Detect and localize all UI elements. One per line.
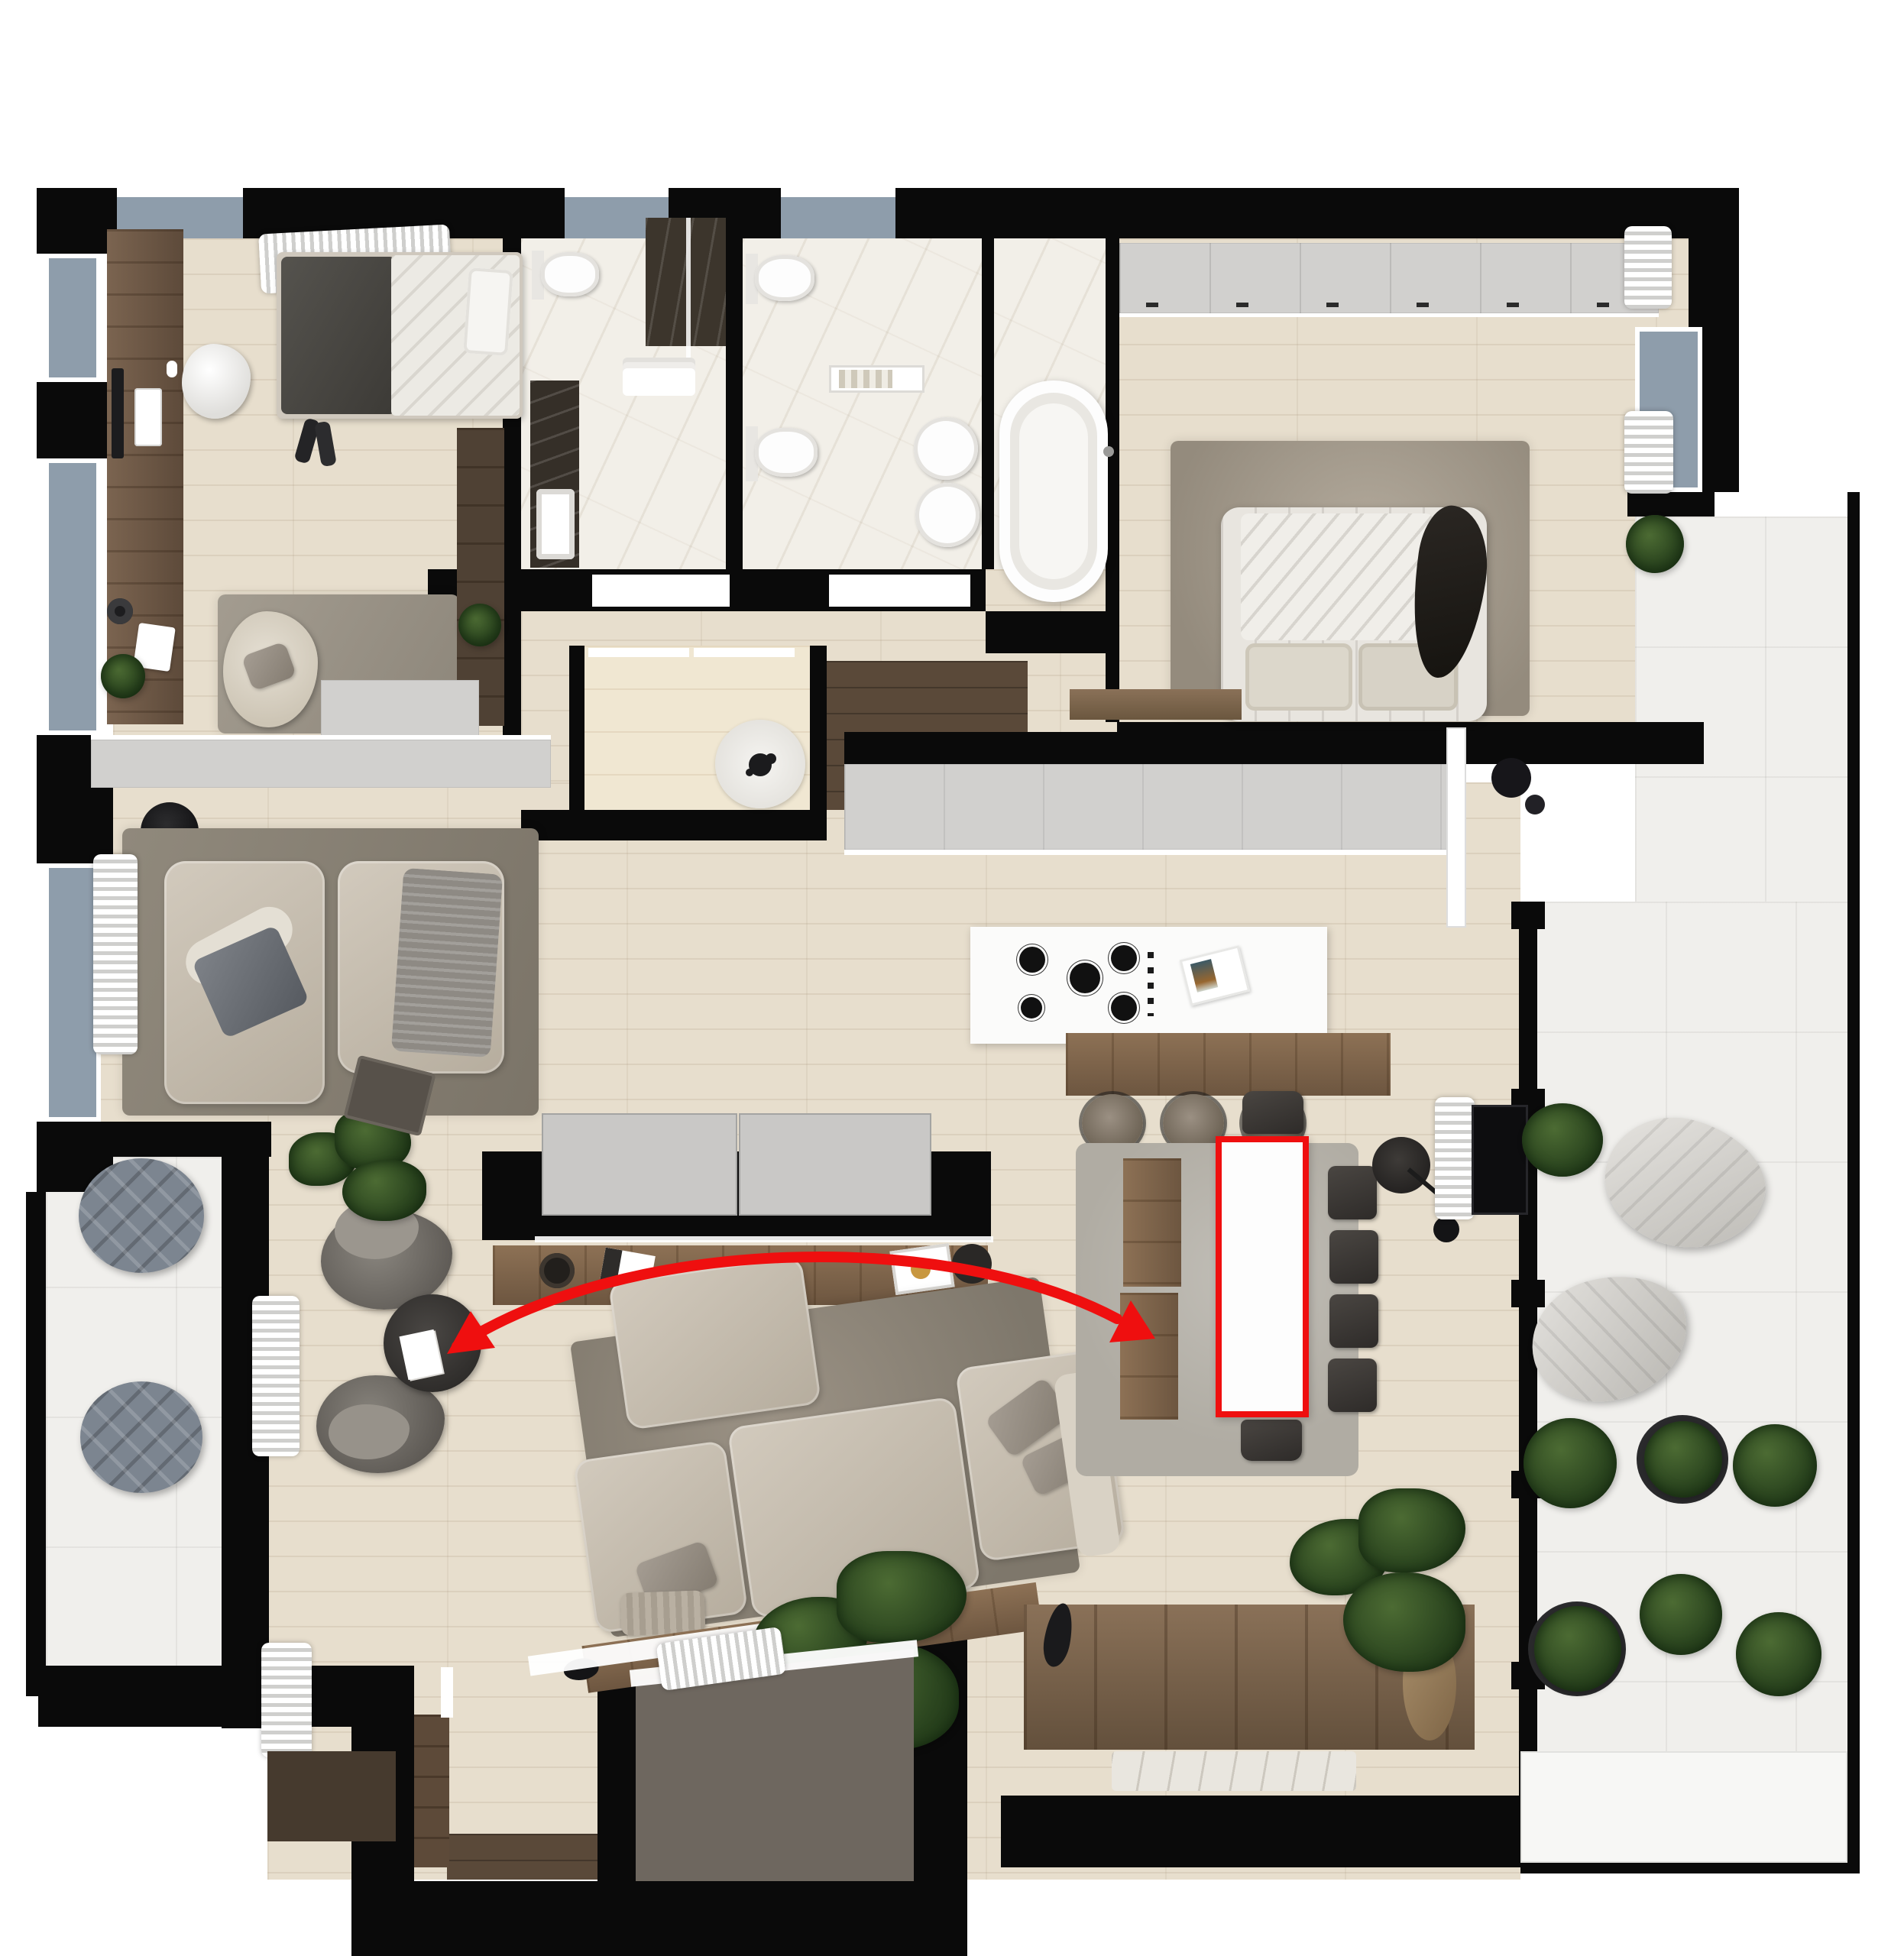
wall-closet-west (569, 646, 584, 837)
house-plant-2 (1290, 1488, 1481, 1695)
window-left-1 (44, 254, 101, 382)
bedroom1-plant (101, 654, 145, 698)
master-stool (1491, 758, 1531, 798)
dining-curtain (1435, 1097, 1475, 1219)
nook-sheepskin (261, 1643, 312, 1757)
shower-glass (686, 218, 691, 380)
terrace-bush-6 (1736, 1612, 1821, 1696)
wall-tubniche-south (986, 611, 1117, 653)
marble-tray (1112, 1751, 1356, 1791)
door-masterhall (829, 575, 970, 607)
dining-chair-bottom (1241, 1420, 1302, 1461)
window-top-1-frame (117, 188, 243, 197)
dining-bench-1 (1123, 1158, 1181, 1287)
bedroom1-pillow (463, 267, 513, 356)
wall-kitchen-back (844, 732, 1117, 766)
terrace-bush-top (1626, 515, 1684, 573)
entry-dark-bench (267, 1751, 396, 1841)
entry-corridor-dark-strip (447, 1834, 619, 1880)
bath2-toilet-1 (755, 255, 814, 301)
terrace-bush-4 (1534, 1606, 1621, 1692)
tv-sliding-panel-1 (542, 1113, 737, 1216)
window-left-2 (44, 458, 101, 735)
kitchen-cabinet-run (844, 764, 1448, 855)
floor-plan-scene (0, 0, 1904, 1956)
master-duvet (1241, 513, 1433, 640)
wall-bath2-east (982, 238, 994, 569)
terrace-bush-2 (1644, 1421, 1722, 1498)
lounge-sideboard-band (91, 735, 551, 788)
monitor (112, 368, 124, 458)
chaise-2-throw (391, 868, 503, 1057)
dining-chair-r2 (1329, 1230, 1378, 1284)
dining-bench-2 (1120, 1293, 1178, 1420)
bidet-1 (914, 417, 978, 480)
dining-floor-lamp-head (1433, 1216, 1459, 1242)
master-curtain-2 (1624, 411, 1673, 494)
terrace-bush-mid (1522, 1103, 1603, 1177)
kitchen-tall-cabinet (1446, 727, 1466, 928)
terrace-bush-5 (1640, 1574, 1722, 1655)
terrace-bush-1 (1524, 1418, 1617, 1508)
mouse (167, 361, 177, 377)
pouf-1 (79, 1158, 204, 1273)
plant-l-leaf2 (837, 1551, 967, 1643)
burner-3 (1021, 997, 1042, 1018)
closet-door-2 (694, 648, 795, 657)
wall-closet-east (810, 646, 827, 837)
wall-bath-divider (726, 238, 743, 569)
window-top-3-glass (781, 197, 895, 238)
terrace-right-bottom-fence (1520, 1861, 1860, 1873)
hall-decor-object (749, 753, 772, 776)
window-top-2-frame (565, 188, 669, 197)
bathtub-faucet (1103, 446, 1114, 457)
master-stool-small (1525, 795, 1545, 814)
tv-sliding-panel-2 (739, 1113, 931, 1216)
wall-bottom-right (1001, 1796, 1520, 1867)
wall-master-east-step (1627, 492, 1715, 517)
closet-door-1 (588, 648, 689, 657)
master-pillow-1 (1245, 643, 1352, 711)
nook-curtain (252, 1296, 300, 1456)
dining-table-highlight (1216, 1136, 1309, 1417)
terrace-right-outer-fence (1847, 492, 1860, 1867)
lounge-curtain (93, 854, 138, 1054)
dining-side-table (1372, 1137, 1430, 1193)
bath1-toilet (541, 252, 599, 296)
keyboard (134, 388, 162, 446)
wall-bottom (351, 1881, 967, 1956)
wardrobe-plant (458, 604, 501, 646)
bath1-towels (623, 358, 695, 396)
window-node-1 (1511, 902, 1545, 929)
desk-clock (107, 598, 133, 624)
terrace-bush-3 (1733, 1424, 1817, 1507)
window-top-3-frame (781, 188, 895, 197)
master-curtain-1 (1624, 226, 1672, 309)
wall-master-south (1117, 722, 1704, 764)
bathtub (999, 381, 1108, 602)
nook-plant-leaf-3 (342, 1160, 426, 1221)
bedroom1-blanket (281, 257, 396, 414)
bidet-2 (915, 483, 980, 547)
sofa-ottoman (608, 1255, 822, 1430)
island-wood-extension (1066, 1033, 1391, 1096)
wall-left-2 (37, 382, 113, 458)
burner-2 (1070, 963, 1100, 993)
burner-5 (1111, 995, 1137, 1021)
entry-door-leaf (441, 1667, 453, 1718)
bath2-toilet-2 (755, 428, 818, 477)
burner-1 (1019, 947, 1045, 973)
sofa-pillow-2 (620, 1590, 706, 1636)
dining-chair-r3 (1329, 1294, 1378, 1348)
bathtub-basin (1019, 403, 1088, 579)
wall-left-1 (37, 188, 113, 254)
bath1-sink (536, 489, 575, 559)
wall-hall-south (521, 810, 827, 840)
terrace-left-outer-wall (26, 1192, 46, 1696)
terrace-right-upper-floor (1635, 517, 1847, 902)
master-foot-bench (1070, 689, 1242, 720)
master-wardrobe-handles (1146, 303, 1635, 307)
dining-chair-top (1242, 1091, 1303, 1134)
bath2-shelf-towels (839, 370, 892, 388)
wall-top-4 (895, 188, 1689, 238)
window-node-3 (1511, 1280, 1545, 1307)
entry-wardrobe (414, 1715, 449, 1867)
plant2-leaf3 (1343, 1572, 1465, 1672)
wall-tv-panel (1472, 1105, 1528, 1215)
terrace-planter-band (1520, 1751, 1847, 1863)
window-left-3 (44, 863, 101, 1122)
door-closet (592, 575, 730, 607)
burner-4 (1111, 945, 1137, 971)
hob-knobs (1148, 952, 1154, 1016)
pouf-2 (80, 1381, 202, 1493)
dining-chair-r4 (1328, 1359, 1377, 1412)
dining-chair-r1 (1328, 1166, 1377, 1219)
plant2-leaf2 (1358, 1488, 1465, 1572)
